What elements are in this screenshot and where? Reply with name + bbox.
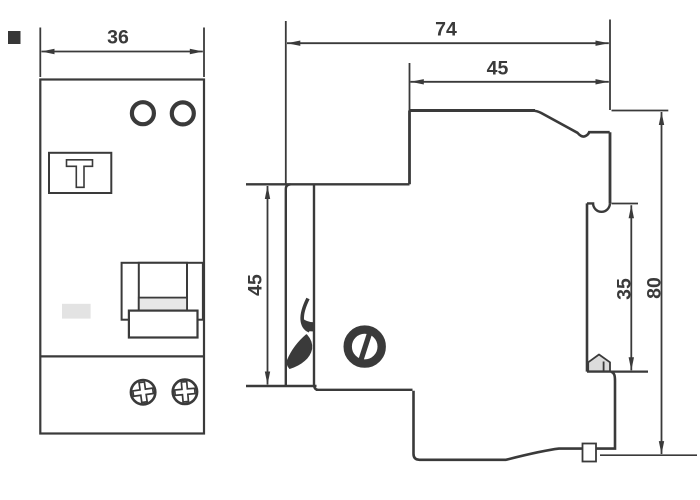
svg-text:80: 80 <box>644 277 666 299</box>
svg-text:45: 45 <box>244 274 266 296</box>
svg-text:74: 74 <box>435 19 457 41</box>
svg-text:45: 45 <box>487 57 509 79</box>
svg-text:36: 36 <box>107 27 129 49</box>
svg-text:35: 35 <box>614 278 636 300</box>
